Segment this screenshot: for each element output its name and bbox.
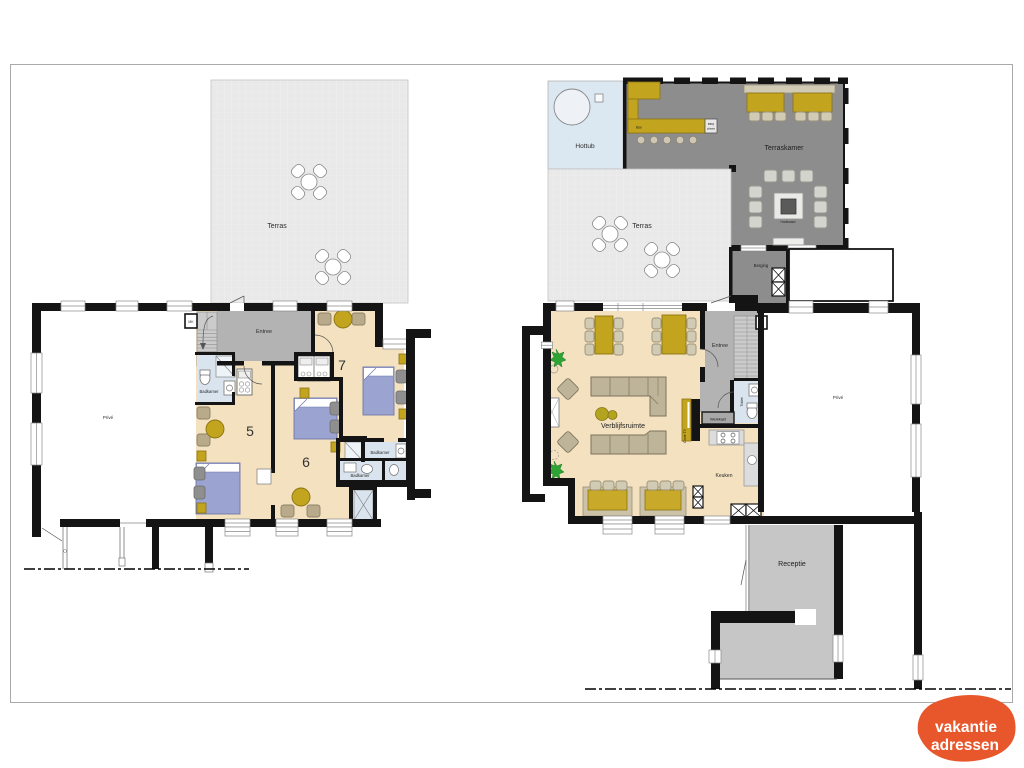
- svg-text:Entree: Entree: [712, 343, 728, 349]
- svg-text:adressen: adressen: [931, 737, 999, 754]
- svg-text:Privé: Privé: [833, 395, 844, 400]
- svg-text:Terras: Terras: [267, 223, 287, 230]
- svg-text:6: 6: [302, 454, 310, 470]
- svg-text:Receptie: Receptie: [778, 561, 806, 568]
- svg-text:Hottub: Hottub: [575, 143, 595, 150]
- svg-text:5: 5: [246, 423, 254, 439]
- svg-text:BBQ: BBQ: [708, 122, 715, 126]
- svg-text:plaats: plaats: [707, 127, 716, 131]
- svg-text:Verblijfsruimte: Verblijfsruimte: [601, 423, 645, 430]
- svg-text:Houthaard: Houthaard: [781, 220, 796, 224]
- svg-text:Berging: Berging: [754, 263, 769, 268]
- svg-text:Badkamer: Badkamer: [350, 473, 370, 478]
- svg-text:Toilet: Toilet: [739, 396, 744, 406]
- svg-text:Badkamer: Badkamer: [370, 450, 390, 455]
- svg-text:vakantie: vakantie: [935, 719, 997, 736]
- svg-text:Werkkast: Werkkast: [710, 418, 727, 422]
- svg-text:Grote TV: Grote TV: [683, 428, 687, 442]
- svg-text:Terraskamer: Terraskamer: [765, 145, 805, 152]
- svg-text:Entree: Entree: [256, 329, 272, 335]
- svg-text:7: 7: [338, 357, 346, 373]
- svg-text:Badkamer: Badkamer: [199, 389, 219, 394]
- svg-text:Keuken: Keuken: [716, 473, 733, 479]
- svg-text:Terras: Terras: [632, 223, 652, 230]
- svg-text:MK: MK: [188, 320, 194, 324]
- svg-text:Privé: Privé: [103, 415, 114, 420]
- svg-text:Bar: Bar: [636, 126, 643, 130]
